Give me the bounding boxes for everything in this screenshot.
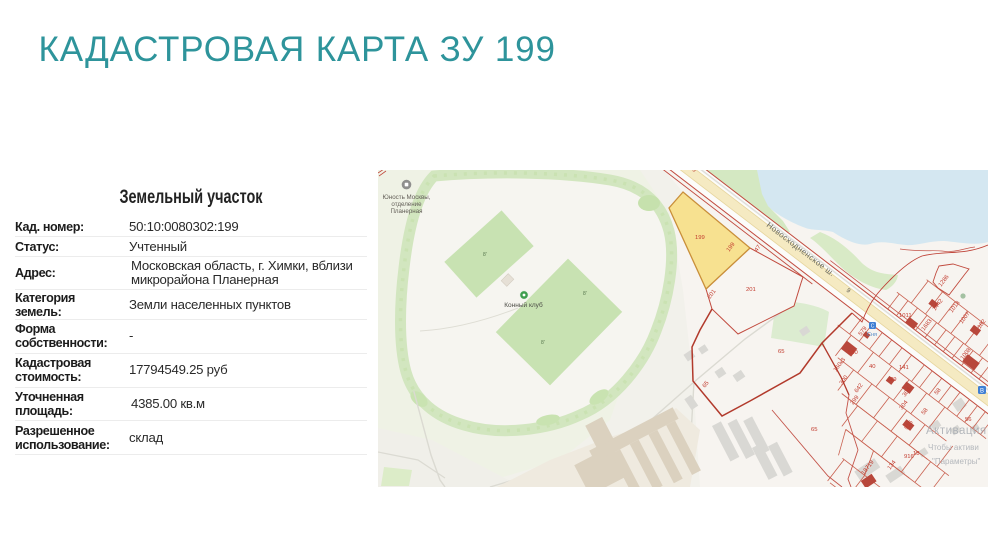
svg-text:Сня: Сня (867, 332, 877, 338)
svg-text:201: 201 (746, 287, 756, 293)
svg-text:199: 199 (695, 235, 705, 241)
svg-text:Активация: Активация (926, 425, 987, 437)
svg-text:отделение: отделение (391, 201, 422, 208)
svg-text:8': 8' (541, 340, 545, 346)
svg-text:29: 29 (890, 377, 897, 383)
svg-text:8': 8' (583, 291, 587, 297)
svg-text:Юность Москвы,: Юность Москвы, (383, 194, 431, 201)
svg-text:18: 18 (913, 451, 920, 457)
svg-text:580: 580 (848, 350, 859, 356)
svg-text:"Параметры": "Параметры" (932, 457, 980, 466)
svg-text:В: В (980, 388, 984, 394)
svg-text:Планерная: Планерная (390, 208, 422, 215)
svg-text:1011: 1011 (899, 313, 912, 319)
svg-text:141: 141 (899, 365, 909, 371)
svg-text:40: 40 (869, 364, 876, 370)
svg-text:Конный клуб: Конный клуб (504, 301, 543, 309)
svg-text:56: 56 (965, 417, 972, 423)
svg-text:8': 8' (483, 252, 487, 258)
svg-text:65: 65 (778, 349, 785, 355)
svg-text:Чтобы активи: Чтобы активи (928, 443, 979, 452)
svg-text:65: 65 (811, 427, 818, 433)
svg-text:С: С (871, 324, 875, 330)
